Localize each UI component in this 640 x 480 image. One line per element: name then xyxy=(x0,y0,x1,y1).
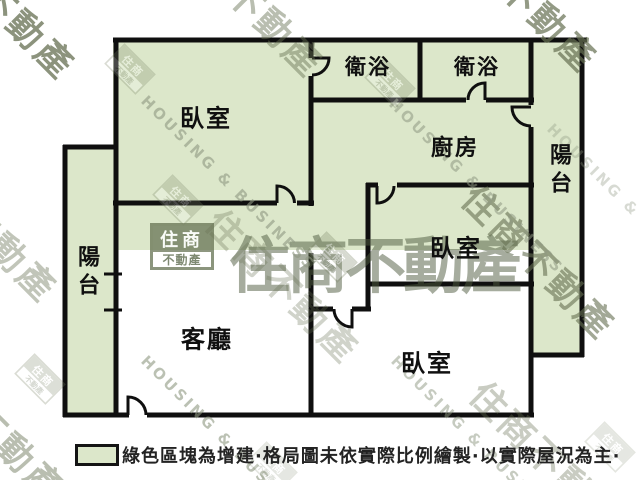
door-bedroom-bottom xyxy=(334,309,352,327)
room-label-kitchen: 廚房 xyxy=(431,130,479,162)
room-label-bedroom-bottom: 臥室 xyxy=(401,344,453,379)
legend-swatch xyxy=(75,444,119,466)
room-label-bedroom-middle: 臥室 xyxy=(430,229,482,264)
door-entrance xyxy=(128,397,146,415)
room-label-bathroom-2: 衛浴 xyxy=(454,51,500,81)
room-label-balcony-right: 陽台 xyxy=(542,143,574,199)
room-label-living-room: 客廳 xyxy=(181,320,233,355)
floorplan-canvas: 住商不動產 住商 不動產 住商不動產 住商不動產 住商不動產 住商不動產 住商不… xyxy=(0,0,640,480)
addition-areas xyxy=(63,38,584,417)
legend-text: 綠色區塊為增建·格局圖未依實際比例繪製·以實際屋況為主· xyxy=(122,442,621,468)
floorplan-drawing xyxy=(0,0,640,480)
room-label-bathroom-1: 衛浴 xyxy=(345,51,391,81)
room-label-bedroom-top-left: 臥室 xyxy=(180,99,232,134)
room-label-balcony-left: 陽台 xyxy=(70,245,102,301)
